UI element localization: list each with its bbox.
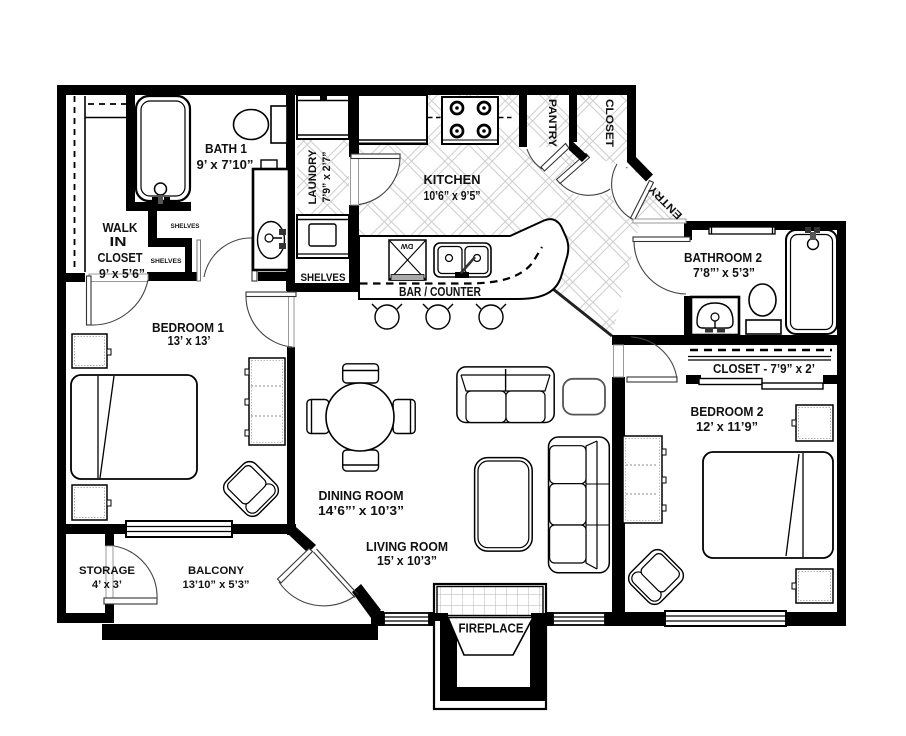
svg-text:BEDROOM 2: BEDROOM 2 bbox=[691, 405, 764, 419]
svg-text:SHELVES: SHELVES bbox=[151, 258, 183, 265]
svg-text:12’ x 11’9”: 12’ x 11’9” bbox=[696, 420, 758, 434]
svg-text:14’6”’ x 10’3”: 14’6”’ x 10’3” bbox=[318, 504, 404, 518]
svg-text:STORAGE: STORAGE bbox=[79, 565, 135, 577]
svg-text:CLOSET: CLOSET bbox=[603, 99, 615, 147]
svg-text:LAUNDRY: LAUNDRY bbox=[307, 149, 319, 205]
svg-text:SHELVES: SHELVES bbox=[301, 272, 346, 284]
svg-text:WALK: WALK bbox=[103, 221, 138, 235]
svg-text:10’6” x 9’5”: 10’6” x 9’5” bbox=[424, 189, 481, 203]
svg-text:BALCONY: BALCONY bbox=[188, 565, 245, 577]
svg-text:CLOSET - 7’9” x 2’: CLOSET - 7’9” x 2’ bbox=[713, 362, 815, 376]
svg-text:BATHROOM 2: BATHROOM 2 bbox=[684, 251, 762, 265]
svg-text:9’ x 7’10”: 9’ x 7’10” bbox=[197, 158, 254, 172]
svg-text:SHELVES: SHELVES bbox=[171, 223, 201, 230]
svg-text:7’8”’ x 5’3”: 7’8”’ x 5’3” bbox=[693, 266, 755, 280]
svg-text:13’ x 13’: 13’ x 13’ bbox=[168, 334, 211, 348]
svg-text:LIVING ROOM: LIVING ROOM bbox=[366, 540, 448, 554]
svg-text:DW: DW bbox=[400, 242, 413, 251]
svg-text:PANTRY: PANTRY bbox=[546, 99, 558, 148]
svg-text:DINING ROOM: DINING ROOM bbox=[319, 489, 404, 503]
svg-text:IN: IN bbox=[110, 235, 127, 249]
svg-text:15’ x 10’3”: 15’ x 10’3” bbox=[377, 554, 437, 568]
svg-text:BEDROOM 1: BEDROOM 1 bbox=[152, 321, 224, 335]
svg-text:9’ x 5’6”: 9’ x 5’6” bbox=[99, 267, 145, 281]
svg-text:BATH 1: BATH 1 bbox=[205, 142, 247, 156]
svg-text:13’10” x 5’3”: 13’10” x 5’3” bbox=[183, 579, 250, 591]
svg-text:4’ x 3’: 4’ x 3’ bbox=[92, 579, 122, 591]
svg-text:FIREPLACE: FIREPLACE bbox=[459, 622, 524, 636]
svg-text:7’9” x 2’7”: 7’9” x 2’7” bbox=[321, 152, 333, 203]
svg-text:KITCHEN: KITCHEN bbox=[424, 173, 481, 187]
svg-text:BAR / COUNTER: BAR / COUNTER bbox=[399, 285, 481, 299]
svg-text:CLOSET: CLOSET bbox=[98, 251, 143, 265]
